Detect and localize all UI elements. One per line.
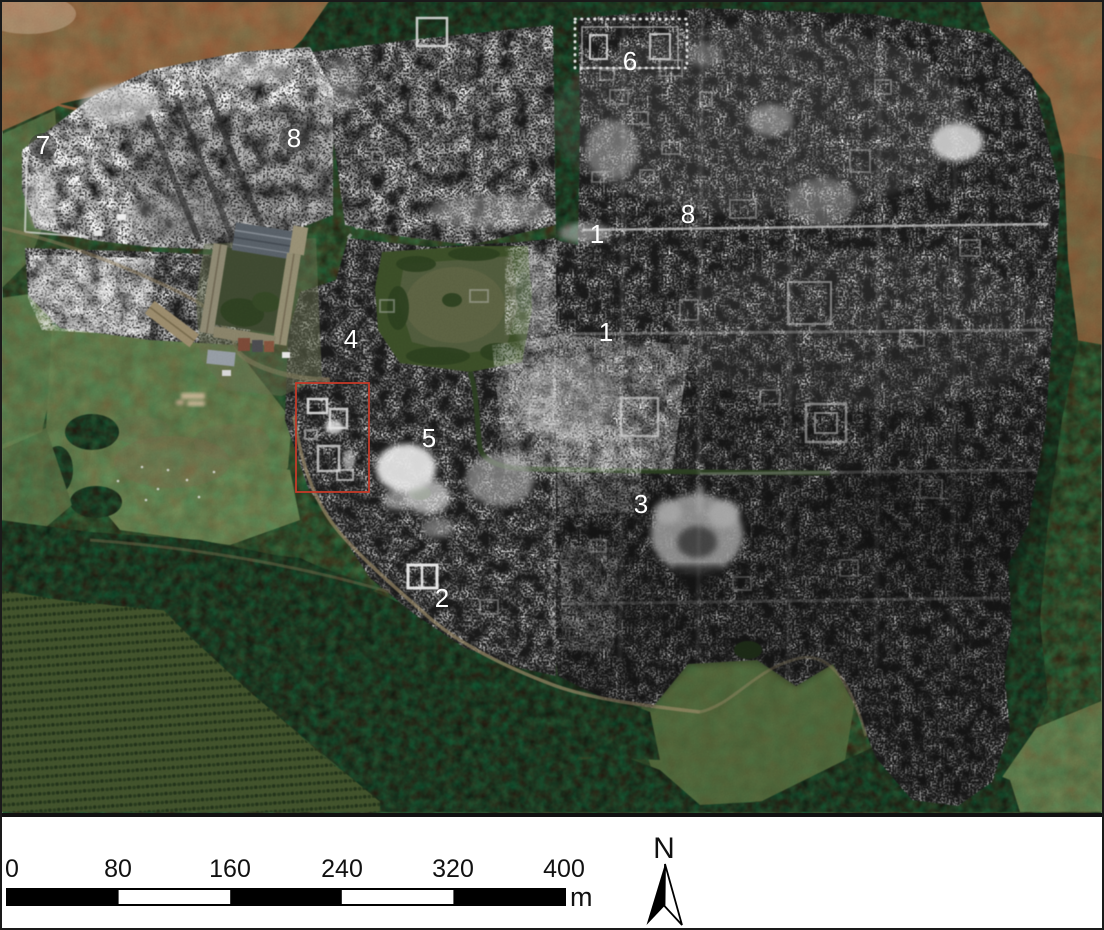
svg-text:160: 160 [209, 855, 251, 883]
svg-text:2: 2 [435, 583, 449, 613]
svg-text:5: 5 [422, 423, 436, 453]
svg-text:m: m [570, 882, 593, 912]
svg-text:1: 1 [590, 219, 604, 249]
svg-text:3: 3 [634, 489, 648, 519]
svg-text:7: 7 [36, 130, 50, 160]
svg-text:N: N [653, 832, 675, 865]
svg-text:8: 8 [287, 123, 301, 153]
svg-text:240: 240 [321, 855, 363, 883]
svg-text:0: 0 [5, 855, 19, 883]
svg-text:4: 4 [344, 324, 358, 354]
svg-text:6: 6 [623, 46, 637, 76]
svg-text:1: 1 [599, 317, 613, 347]
svg-text:80: 80 [104, 855, 132, 883]
svg-text:400: 400 [543, 855, 585, 883]
svg-text:8: 8 [681, 199, 695, 229]
svg-text:320: 320 [432, 855, 474, 883]
